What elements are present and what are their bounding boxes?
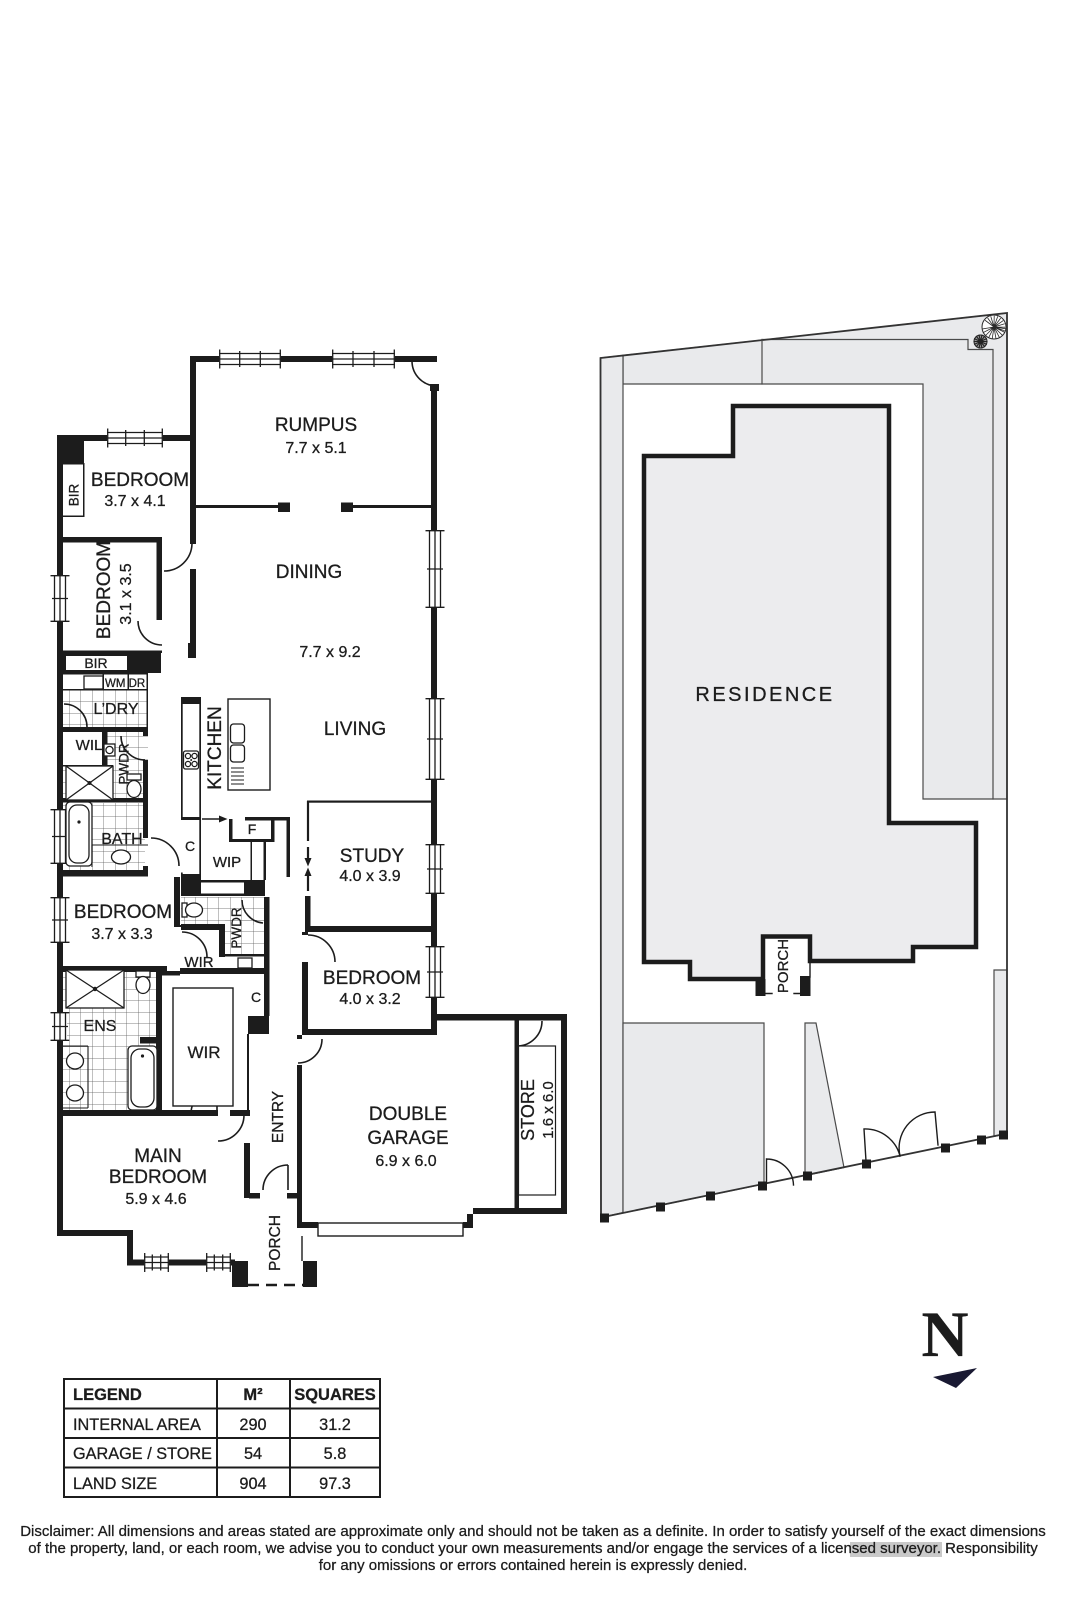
svg-text:PWDR: PWDR (117, 743, 132, 784)
svg-text:3.1 x 3.5: 3.1 x 3.5 (118, 563, 135, 624)
svg-text:SQUARES: SQUARES (294, 1386, 376, 1404)
svg-text:of the property, land, or each: of the property, land, or each room, we … (28, 1540, 1038, 1557)
svg-text:4.0 x 3.9: 4.0 x 3.9 (339, 868, 400, 885)
svg-text:904: 904 (239, 1475, 266, 1493)
svg-text:54: 54 (244, 1445, 262, 1463)
svg-text:BEDROOM: BEDROOM (91, 470, 189, 491)
svg-text:RUMPUS: RUMPUS (275, 415, 357, 436)
svg-text:M²: M² (243, 1386, 263, 1404)
svg-text:C: C (251, 989, 261, 1005)
svg-text:3.7 x 4.1: 3.7 x 4.1 (104, 493, 165, 510)
svg-text:3.7 x 3.3: 3.7 x 3.3 (91, 926, 152, 943)
svg-text:MAIN: MAIN (134, 1146, 182, 1167)
svg-text:DINING: DINING (276, 562, 343, 583)
svg-text:KITCHEN: KITCHEN (205, 706, 226, 789)
svg-text:ENS: ENS (84, 1018, 117, 1035)
svg-text:L’DRY: L’DRY (93, 701, 138, 718)
svg-text:4.0 x 3.2: 4.0 x 3.2 (339, 991, 400, 1008)
svg-text:PWDR: PWDR (229, 907, 244, 948)
svg-text:LEGEND: LEGEND (73, 1386, 142, 1404)
svg-text:for any omissions or errors co: for any omissions or errors contained he… (319, 1557, 748, 1574)
svg-text:BEDROOM: BEDROOM (109, 1167, 207, 1188)
svg-text:RESIDENCE: RESIDENCE (695, 684, 834, 706)
svg-text:6.9 x 6.0: 6.9 x 6.0 (375, 1153, 436, 1170)
svg-text:GARAGE: GARAGE (367, 1128, 448, 1149)
svg-text:DOUBLE: DOUBLE (369, 1104, 447, 1125)
svg-text:BEDROOM: BEDROOM (323, 968, 421, 989)
svg-text:INTERNAL AREA: INTERNAL AREA (73, 1416, 201, 1434)
svg-text:N: N (922, 1299, 969, 1371)
svg-text:5.8: 5.8 (324, 1445, 347, 1463)
svg-text:BIR: BIR (84, 655, 107, 671)
svg-text:Disclaimer: All dimensions and: Disclaimer: All dimensions and areas sta… (20, 1523, 1046, 1540)
svg-text:PORCH: PORCH (775, 939, 792, 993)
svg-text:WIP: WIP (213, 854, 241, 871)
svg-text:1.6 x 6.0: 1.6 x 6.0 (540, 1081, 557, 1139)
svg-text:PORCH: PORCH (267, 1215, 284, 1271)
svg-text:BEDROOM: BEDROOM (94, 541, 115, 639)
svg-text:97.3: 97.3 (319, 1475, 351, 1493)
svg-text:BEDROOM: BEDROOM (74, 902, 172, 923)
svg-text:STORE: STORE (518, 1079, 538, 1141)
svg-text:7.7 x 9.2: 7.7 x 9.2 (299, 644, 360, 661)
svg-text:GARAGE / STORE: GARAGE / STORE (73, 1445, 212, 1463)
svg-text:290: 290 (239, 1416, 266, 1434)
svg-text:C: C (185, 838, 195, 854)
svg-text:LIVING: LIVING (324, 719, 386, 740)
svg-text:WIR: WIR (187, 1043, 220, 1062)
svg-text:F: F (248, 821, 257, 837)
svg-text:7.7 x 5.1: 7.7 x 5.1 (285, 440, 346, 457)
svg-text:ENTRY: ENTRY (270, 1091, 287, 1143)
svg-text:WIR: WIR (184, 954, 213, 971)
svg-text:STUDY: STUDY (340, 846, 405, 867)
svg-text:BATH: BATH (101, 831, 142, 848)
svg-text:WIL: WIL (76, 737, 103, 754)
svg-text:BIR: BIR (67, 484, 82, 507)
svg-text:LAND SIZE: LAND SIZE (73, 1475, 157, 1493)
svg-text:WM DR: WM DR (105, 678, 145, 690)
svg-text:5.9 x 4.6: 5.9 x 4.6 (125, 1191, 186, 1208)
svg-text:31.2: 31.2 (319, 1416, 351, 1434)
